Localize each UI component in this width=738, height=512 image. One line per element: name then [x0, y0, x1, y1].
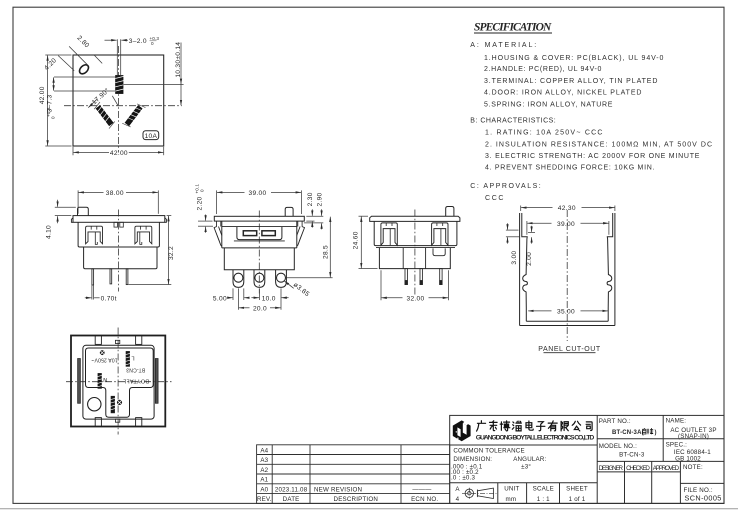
svg-text:BOYTALL: BOYTALL: [123, 378, 149, 384]
svg-text:C: APPROVALS:: C: APPROVALS:: [470, 183, 541, 190]
svg-text:+0.3: +0.3: [150, 36, 160, 41]
svg-text:35.00: 35.00: [557, 308, 575, 315]
svg-text:DIMENSION:: DIMENSION:: [453, 456, 492, 463]
svg-text:SHEET: SHEET: [566, 486, 588, 493]
svg-text:0: 0: [51, 116, 56, 119]
svg-text:NAME:: NAME:: [666, 418, 687, 425]
svg-text:A: A: [455, 486, 460, 493]
svg-text:2.HANDLE: PC(RED), UL 94V-0: 2.HANDLE: PC(RED), UL 94V-0: [484, 66, 602, 73]
svg-text:2.30: 2.30: [307, 192, 314, 206]
svg-text:24.60: 24.60: [353, 231, 360, 249]
svg-text:2.20: 2.20: [197, 196, 204, 210]
svg-text:3.TERMINAL: COPPER ALLOY, TIN: 3.TERMINAL: COPPER ALLOY, TIN PLATED: [484, 78, 658, 85]
svg-text:COMMON TOLERANCE: COMMON TOLERANCE: [453, 448, 524, 455]
svg-text:A3: A3: [260, 457, 268, 464]
svg-text:0.70t: 0.70t: [101, 296, 117, 303]
svg-text:38.00: 38.00: [106, 190, 124, 197]
svg-text:10A 250V~: 10A 250V~: [91, 357, 117, 363]
svg-text:PANEL CUT-OUT: PANEL CUT-OUT: [538, 346, 601, 353]
svg-text:2.00: 2.00: [526, 252, 533, 266]
svg-text:MODEL NO.:: MODEL NO.:: [599, 443, 637, 450]
svg-text:SCALE: SCALE: [533, 486, 554, 493]
svg-text:GUANGDONG BOYTALL ELECTRONICS: GUANGDONG BOYTALL ELECTRONICS CO.,LTD: [476, 434, 595, 441]
svg-text:0: 0: [151, 41, 154, 46]
svg-text:PART NO.:: PART NO.:: [599, 418, 631, 425]
svg-text:ECN NO.: ECN NO.: [411, 496, 438, 503]
svg-text:A1: A1: [260, 477, 268, 484]
svg-text:5.SPRING: IRON ALLOY, NATURE: 5.SPRING: IRON ALLOY, NATURE: [484, 101, 613, 108]
svg-text:N: N: [103, 376, 107, 382]
svg-text:3.00: 3.00: [511, 251, 518, 265]
svg-text:39.00: 39.00: [248, 190, 266, 197]
svg-text:0: 0: [199, 189, 204, 192]
svg-text:10.0: 10.0: [262, 295, 276, 302]
svg-text:APPROVED: APPROVED: [653, 465, 680, 472]
svg-text:BT-CN-3A(: BT-CN-3A(: [612, 430, 644, 436]
svg-text:A4: A4: [260, 447, 268, 454]
svg-text:A2: A2: [260, 467, 268, 474]
svg-text:CCC: CCC: [485, 195, 504, 202]
svg-text:32.2: 32.2: [168, 246, 175, 260]
svg-text:.0 : ±0.3: .0 : ±0.3: [451, 474, 475, 481]
svg-text:SPECIFICATION: SPECIFICATION: [474, 22, 552, 34]
svg-text:DATE: DATE: [283, 496, 300, 503]
svg-text:A: MATERIAL:: A: MATERIAL:: [470, 42, 537, 49]
svg-text:4.10: 4.10: [45, 225, 52, 239]
svg-text:BT-CN-3: BT-CN-3: [619, 452, 645, 459]
svg-text:20.0: 20.0: [253, 305, 267, 312]
svg-text:2. INSULATION RESISTANCE: 100M: 2. INSULATION RESISTANCE: 100MΩ MIN, AT …: [485, 141, 713, 148]
svg-text:42.30: 42.30: [558, 205, 576, 212]
svg-text:DESIGNER: DESIGNER: [599, 465, 624, 472]
svg-text:4: 4: [456, 496, 460, 503]
svg-text:B: CHARACTERISTICS:: B: CHARACTERISTICS:: [470, 118, 556, 125]
svg-text:1. RATING: 10A 250V~ CCC: 1. RATING: 10A 250V~ CCC: [485, 130, 603, 137]
svg-text:CHECKED: CHECKED: [626, 465, 650, 472]
svg-text:A0: A0: [260, 486, 268, 493]
svg-text:NEW REVISION: NEW REVISION: [314, 486, 362, 493]
svg-text:3. ELECTRIC STRENGTH: AC 2000V: 3. ELECTRIC STRENGTH: AC 2000V FOR ONE M…: [485, 153, 700, 160]
svg-text:2023.11.08: 2023.11.08: [275, 486, 308, 493]
svg-text:39.00: 39.00: [557, 221, 575, 228]
svg-text:3–2.0: 3–2.0: [129, 38, 147, 45]
svg-text:———: ———: [412, 486, 432, 493]
svg-text:±3°: ±3°: [521, 464, 531, 471]
svg-text:10.30±0.14: 10.30±0.14: [175, 42, 182, 78]
svg-text:4. PREVENT SHEDDING FORCE: 10K: 4. PREVENT SHEDDING FORCE: 10KG MIN.: [485, 165, 655, 172]
svg-text:+0.3: +0.3: [46, 107, 51, 117]
svg-text:UNIT: UNIT: [504, 486, 519, 493]
svg-text:2.90: 2.90: [316, 192, 323, 206]
svg-text:1.HOUSING & COVER: PC(BLACK),: 1.HOUSING & COVER: PC(BLACK), UL 94V-0: [484, 55, 664, 62]
svg-text:42.00: 42.00: [39, 86, 46, 104]
svg-text:32.00: 32.00: [406, 295, 424, 302]
svg-text:1 : 1: 1 : 1: [537, 496, 550, 503]
svg-text:GB 1002: GB 1002: [675, 456, 701, 463]
svg-text:1 of 1: 1 of 1: [569, 496, 586, 503]
svg-text:DESCRIPTION: DESCRIPTION: [334, 496, 379, 503]
svg-text:SPEC.:: SPEC.:: [666, 442, 688, 449]
svg-text:REV.: REV.: [257, 496, 272, 503]
svg-text:NOTE:: NOTE:: [683, 464, 703, 471]
svg-text:ANGULAR:: ANGULAR:: [513, 456, 546, 463]
svg-text:4.DOOR: IRON ALLOY, NICKEL PLA: 4.DOOR: IRON ALLOY, NICKEL PLATED: [484, 90, 642, 97]
svg-text:28.5: 28.5: [323, 245, 330, 259]
svg-text:mm: mm: [506, 496, 517, 503]
svg-text:SCN-0005: SCN-0005: [685, 494, 722, 503]
svg-text:(SNAP-IN): (SNAP-IN): [678, 433, 709, 440]
svg-text:BT-CN3: BT-CN3: [126, 367, 145, 373]
svg-text:42.00: 42.00: [110, 150, 128, 157]
svg-text:5.00: 5.00: [213, 295, 227, 302]
svg-text:): ): [655, 430, 657, 436]
svg-text:10A: 10A: [145, 133, 158, 140]
